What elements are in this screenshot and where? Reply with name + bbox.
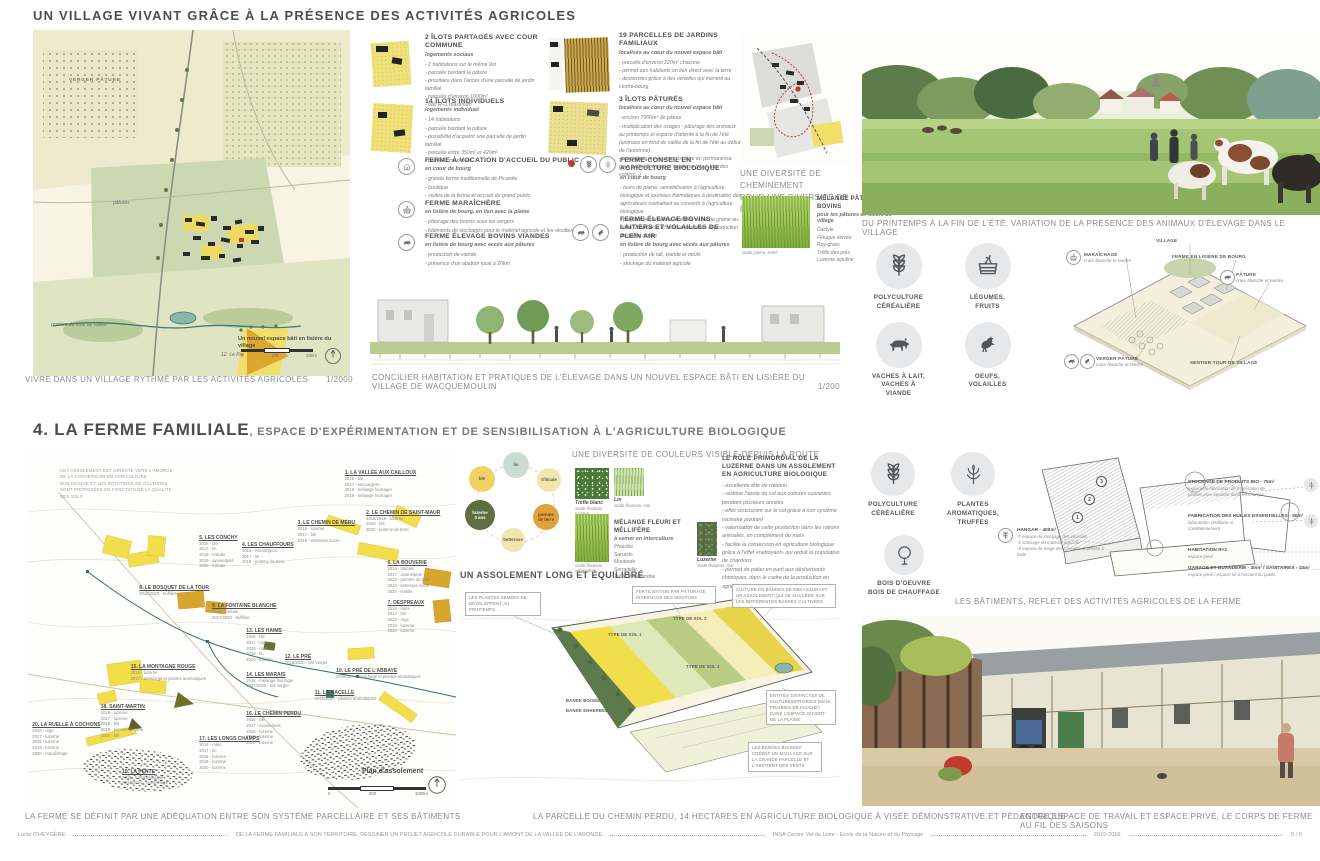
bullet: - prioritaire dans l'accès d'une parcell… bbox=[425, 77, 543, 93]
parcel-labels-layer: 1. LA VALLÉE AUX CAILLOUX 2016 - blé 201… bbox=[28, 452, 456, 812]
bullet: - parcelle entre 350m² et 420m² bbox=[425, 149, 543, 157]
section-caption-row: CONCILIER HABITATION ET PRATIQUES DE L'É… bbox=[372, 373, 840, 391]
annotation: TYPE DE SOL 2 bbox=[673, 616, 713, 622]
perspective-annotations: LES PLANTES SEMÉES SE DÉVELOPPENT AU PRI… bbox=[460, 580, 840, 805]
bullet: - 14 habitations bbox=[425, 116, 543, 124]
block-subheading: en cœur de bourg bbox=[425, 166, 580, 172]
annotation: TYPE DE SOL 1 bbox=[608, 632, 648, 638]
axo-label: VERGER PÂTURÉ craie blanche et tendre bbox=[1096, 356, 1166, 368]
village-meadow-illustration bbox=[862, 33, 1320, 215]
crate-icon bbox=[398, 201, 415, 218]
activity-icon-label: OEUFS, VOLAILLES bbox=[968, 373, 1006, 391]
plant-icon bbox=[1304, 478, 1318, 492]
parcel-rotation: 2016 - blé 2017 - orge 2018 - maïs 2019 … bbox=[246, 634, 332, 662]
annotation: BANDE ENHERBÉE bbox=[566, 708, 616, 714]
block-heading: 19 PARCELLES DE JARDINS FAMILIAUX bbox=[619, 32, 741, 49]
parcel-label: 13. LES HAIMS 2016 - blé 2017 - orge 201… bbox=[246, 628, 332, 662]
farm-icon-cell: BOIS D'OEUVRE BOIS DE CHAUFFAGE bbox=[864, 535, 944, 598]
section4-subtitle: , ESPACE D'EXPÉRIMENTATION ET DE SENSIBI… bbox=[249, 426, 786, 438]
parcel-label: 1. LA VALLÉE AUX CAILLOUX 2016 - blé 201… bbox=[345, 470, 431, 499]
rotation-diagram: lintriticalepomme de terrebetteraveluzer… bbox=[463, 452, 573, 564]
parcel-name: 2. LE CHEMIN DE SAINT-MAUR bbox=[366, 510, 452, 516]
block-subheading: logements sociaux bbox=[425, 52, 543, 58]
map-scalebar: 0100200m bbox=[241, 348, 313, 358]
activity-icon-cell: LÉGUMES, FRUITS bbox=[957, 243, 1018, 312]
rotation-nodes: lintriticalepomme de terrebetteraveluzer… bbox=[463, 452, 573, 564]
block-subheading: localisés au cœur du nouvel espace bâti bbox=[619, 50, 741, 56]
parcel-label: 17. LES LONGS CHAMPS 2016 - maïs 2017 - … bbox=[199, 736, 285, 770]
cow-icon bbox=[1064, 354, 1079, 369]
activity-icon-label: LÉGUMES, FRUITS bbox=[970, 294, 1005, 312]
fleuri-heading: MÉLANGE FLEURI ET MÉLLIFÈRE bbox=[614, 520, 696, 535]
rotation-node: blé bbox=[469, 466, 495, 492]
annotation: BANDE BOISÉE bbox=[566, 698, 610, 704]
rotation-node: lin bbox=[503, 452, 529, 478]
rotation-node: pomme de terre bbox=[533, 504, 559, 530]
activity-icon-label: POLYCULTURE CÉRÉALIÈRE bbox=[874, 294, 923, 312]
north-compass-icon bbox=[323, 346, 343, 366]
parcel-label: 19. LA PENTE 2016 - luzerne/dactyle 2017… bbox=[122, 769, 208, 786]
farm-buildings-axonometric: 123 HANGAR - 400m² ① espace de stockage … bbox=[990, 452, 1320, 597]
illustration-caption: DU PRINTEMPS À LA FIN DE L'ÉTÉ, VARIATIO… bbox=[862, 219, 1320, 237]
parcel-rotation: 2016 - triticale 2017/2020 - truffière bbox=[212, 609, 298, 620]
parcel-rotation: 2016 - orge 2017 - luzerne 2018 - luzern… bbox=[32, 728, 118, 756]
footer-divider bbox=[610, 834, 765, 836]
activity-icon-cell: OEUFS, VOLAILLES bbox=[957, 322, 1018, 399]
hen-icon bbox=[965, 322, 1011, 368]
axo-label: FERME EN LISIÈRE DE BOURG bbox=[1172, 254, 1262, 260]
building-label: GARAGE ET BUANDERIE - 30m² / SANITAIRES … bbox=[1188, 566, 1318, 578]
bullet: - restitue l'azote du sol aux cultures s… bbox=[722, 490, 840, 507]
crate-icon bbox=[1066, 250, 1081, 265]
grass-photo-caption: stade prairie, semé bbox=[742, 250, 778, 255]
bullet: - facilite la conversion en agriculture … bbox=[722, 541, 840, 566]
map-poi-dot bbox=[795, 86, 800, 91]
block-subheading: en lisière de bourg avec accès aux pâtur… bbox=[620, 242, 742, 248]
tree-icon bbox=[884, 535, 924, 575]
block-ferme-accueil: FERME À VOCATION D'ACCUEIL DU PUBLIC en … bbox=[425, 157, 580, 200]
presentation-board: UN VILLAGE VIVANT GRÂCE À LA PRÉSENCE DE… bbox=[0, 0, 1320, 861]
courtyard-caption: ENTRE ESPACE DE TRAVAIL ET ESPACE PRIVÉ,… bbox=[1020, 812, 1320, 830]
parcel-rotation: 2016 - blé 2017 - lin 2018 - triticale 2… bbox=[199, 541, 285, 569]
luzerne-bullets: - excellente tête de rotation- restitue … bbox=[722, 482, 840, 591]
section4-title-row: 4. LA FERME FAMILIALE, ESPACE D'EXPÉRIME… bbox=[33, 420, 787, 440]
bullet: - permet aux habitants un lien direct av… bbox=[619, 67, 741, 75]
activity-icon-label: VACHES À LAIT, VACHES À VIANDE bbox=[868, 373, 929, 399]
house-icon bbox=[398, 158, 415, 175]
bullet: - excellente tête de rotation bbox=[722, 482, 840, 490]
plan-thumbnail-ilots-individuels bbox=[368, 100, 416, 156]
assolement-map: CET ASSOLEMENT EST ORIENTÉ VERS L'AMORCE… bbox=[28, 452, 456, 812]
crate-icon bbox=[965, 243, 1011, 289]
cheminement-map bbox=[742, 33, 857, 165]
plant-icon bbox=[951, 452, 995, 496]
footer-author: Lucie D'HEYGÈRE bbox=[18, 832, 65, 838]
cow-icon bbox=[1220, 270, 1235, 285]
bullet: - effet structurant sur le sol grâce à s… bbox=[722, 507, 840, 524]
luzerne-heading: LE RÔLE PRIMORDIAL DE LA LUZERNE DANS UN… bbox=[722, 455, 840, 479]
village-map-caption: VIVRE DANS UN VILLAGE RYTHMÉ PAR LES ACT… bbox=[25, 375, 308, 384]
block-jardins-familiaux: 19 PARCELLES DE JARDINS FAMILIAUX locali… bbox=[619, 32, 741, 91]
species-item: Sarrasin bbox=[614, 552, 696, 560]
cow-icon bbox=[398, 234, 415, 251]
plan-scalebar: 05001000m bbox=[328, 786, 428, 796]
village-map-scale: 1/2000 bbox=[326, 375, 353, 384]
bullet: - tours de plaine, sensibilisation à l'a… bbox=[620, 184, 742, 216]
block-bullets: - parcelle d'environ 220m² chacune- perm… bbox=[619, 59, 741, 91]
bullet: - parcelle d'environ 220m² chacune bbox=[619, 59, 741, 67]
block-heading: FERME-CONSEIL EN AGRICULTURE BIOLOGIQUE bbox=[620, 157, 742, 174]
north-compass-icon bbox=[426, 774, 448, 796]
footer-divider bbox=[73, 834, 228, 836]
footer-page: 5 / 5 bbox=[1291, 832, 1302, 838]
parcel-rotation: 2016 - luzerne 2017 - maïs/orge et plant… bbox=[131, 670, 217, 681]
block-bullets: - grande ferme traditionnelle de Picardi… bbox=[425, 175, 580, 199]
building-label: FABRICATION DES HUILES ESSENTIELLES - 50… bbox=[1188, 514, 1306, 532]
hen-icon bbox=[1080, 354, 1095, 369]
activity-icon-cell: POLYCULTURE CÉRÉALIÈRE bbox=[868, 243, 929, 312]
building-label: HABITATION R+1 espace privé bbox=[1188, 548, 1306, 560]
footer: Lucie D'HEYGÈRE DE LA FERME FAMILIALE À … bbox=[18, 832, 1302, 838]
buildings-caption: LES BÂTIMENTS, REFLET DES ACTIVITÉS AGRI… bbox=[955, 597, 1241, 606]
block-ferme-bovins-laitiers: FERME ÉLEVAGE BOVINS LAITIERS ET VOLAILL… bbox=[620, 216, 742, 268]
courtyard-illustration bbox=[862, 616, 1320, 806]
block-subheading: en lisière de bourg avec accès aux pâtur… bbox=[425, 242, 580, 248]
block-heading: FERME ÉLEVAGE BOVINS VIANDES bbox=[425, 233, 580, 241]
wheat-icon bbox=[871, 452, 915, 496]
annotation: ENTITÉS DISTINCTES DE CULTURES/PRAIRIES … bbox=[766, 690, 836, 725]
axo-label: MARAÎCHAGE craie blanche et tendre bbox=[1084, 252, 1154, 264]
parcel-rotation: 2016 - luzerne 2017 - blé 2018 - bettera… bbox=[298, 526, 384, 543]
rotation-node: luzerne 3 ans bbox=[465, 500, 495, 530]
wheat-icon bbox=[580, 156, 597, 173]
bullet: - parcelle bordant la pâture bbox=[425, 125, 543, 133]
block-heading: FERME MARAÎCHÈRE bbox=[425, 200, 580, 208]
activity-icons-grid: POLYCULTURE CÉRÉALIÈRE LÉGUMES, FRUITS V… bbox=[868, 243, 1018, 399]
bullet: - visites de la ferme et accueil du gran… bbox=[425, 192, 580, 200]
parcel-rotation: 2016 - mélange fourrager 2017/2020 - pré… bbox=[246, 678, 332, 689]
axo-label: VILLAGE bbox=[1156, 238, 1216, 244]
bullet: - pâturage des bovins sous les vergers bbox=[425, 218, 580, 226]
hen-icon bbox=[592, 224, 609, 241]
parcel-label: 9. LA FONTAINE BLANCHE 2016 - triticale … bbox=[212, 603, 298, 620]
footer-project: DE LA FERME FAMILIALE À SON TERRITOIRE, … bbox=[236, 832, 602, 838]
bullet: - environ 7000m² de pâture bbox=[619, 114, 741, 122]
cow-icon bbox=[572, 224, 589, 241]
parcel-label: 3. LE CHEMIN DE MÉRU 2016 - luzerne 2017… bbox=[298, 520, 384, 543]
bullet: - production de viande bbox=[425, 251, 580, 259]
footer-year: 2015-2016 bbox=[1094, 832, 1121, 838]
bullet: - valorisation de cette production dans … bbox=[722, 524, 840, 541]
block-heading: 3 ÎLOTS PÂTURÉS bbox=[619, 96, 741, 104]
plan-thumbnail-jardins-familiaux bbox=[547, 36, 611, 94]
block-subheading: en lisière de bourg, en lien avec la pla… bbox=[425, 209, 580, 215]
parcel-perspective: LES PLANTES SEMÉES SE DÉVELOPPENT AU PRI… bbox=[460, 580, 840, 805]
section4-title: 4. LA FERME FAMILIALE bbox=[33, 420, 249, 439]
axo-label: SENTIER TOUR DE VILLAGE bbox=[1190, 360, 1280, 366]
photo-lin: Lin stade floraison, mai bbox=[614, 468, 650, 508]
footer-school: INSA Centre Val de Loire - École de la N… bbox=[773, 832, 923, 838]
plant-icon bbox=[1304, 514, 1318, 528]
axo-label: PÂTURE craie blanche et tendre bbox=[1236, 272, 1306, 284]
village-map-labels: VERGER PÂTUREpâturesprairies de fond de … bbox=[33, 30, 350, 376]
cow-icon bbox=[876, 322, 922, 368]
red-dot-icon bbox=[568, 160, 575, 167]
melange-fleuri-block: MÉLANGE FLEURI ET MÉLLIFÈRE à semer en i… bbox=[614, 520, 696, 582]
farm-icon-cell: POLYCULTURE CÉRÉALIÈRE bbox=[864, 452, 922, 527]
fleuri-species-list: PhacélieSarrasinMoutardeSerradelleTrèfle… bbox=[614, 544, 696, 582]
section-scale: 1/200 bbox=[818, 382, 840, 391]
parcel-rotation: 2016/20 - maraîchage et plantes aromatiq… bbox=[336, 674, 422, 680]
rotation-node: triticale bbox=[537, 468, 561, 492]
annotation: CULTURE EN BANDES DE 50M ASSURANT UN ASS… bbox=[732, 584, 836, 608]
parcel-label: 11. LA NACELLE 2016/2020 - plantes aroma… bbox=[315, 690, 401, 702]
block-heading: 2 ÎLOTS PARTAGÉS AVEC COUR COMMUNE bbox=[425, 34, 543, 51]
plant-icon bbox=[599, 156, 616, 173]
parcel-rotation: 2016 - maïs 2017 - lin 2018 - luzerne 20… bbox=[199, 742, 285, 770]
footer-divider bbox=[1129, 834, 1284, 836]
photo-melange-fleuri: stade floraison, septembre bbox=[575, 514, 609, 574]
map-label: prairies de fond de vallée bbox=[51, 322, 107, 329]
rotation-node: betterave bbox=[501, 528, 525, 552]
building-label: STOCKAGE DE PRODUITS BIO - 75m² espace d… bbox=[1188, 480, 1306, 498]
assolement-map-caption: LA FERME SE DÉFINIT PAR UNE ADÉQUATION E… bbox=[25, 812, 461, 821]
parcel-label: 15. LA MONTAGNE ROUGE 2016 - luzerne 201… bbox=[131, 664, 217, 681]
parcel-label: 8. LE BOSQUET DE LA TOUR 2016/2020 - tru… bbox=[139, 585, 225, 597]
bullet: - grande ferme traditionnelle de Picardi… bbox=[425, 175, 580, 183]
annotation: FERTILISATION PAR PÂTURAGE HIVERNAGE DES… bbox=[632, 586, 716, 604]
parcel-label: 20. LA RUELLE À COCHONS 2016 - orge 2017… bbox=[32, 722, 118, 756]
block-heading: 14 ÎLOTS INDIVIDUELS bbox=[425, 98, 543, 106]
village-axonometric: MARAÎCHAGE craie blanche et tendre VILLA… bbox=[1040, 238, 1320, 390]
village-section-drawing bbox=[370, 262, 840, 370]
village-map: VERGER PÂTUREpâturesprairies de fond de … bbox=[33, 30, 350, 376]
map-label: pâtures bbox=[113, 200, 130, 207]
annotation: LES PLANTES SEMÉES SE DÉVELOPPENT AU PRI… bbox=[465, 592, 541, 616]
block-subheading: logements individuel bbox=[425, 107, 543, 113]
bullet: - production de lait, viande et oeufs bbox=[620, 251, 742, 259]
block-heading: FERME À VOCATION D'ACCUEIL DU PUBLIC bbox=[425, 157, 580, 165]
parcel-label: 10. LE PRÉ DE L'ABBAYE 2016/20 - maraîch… bbox=[336, 668, 422, 680]
parcel-rotation: 2016/2020 - truffière bbox=[139, 591, 225, 597]
block-ilots-individuels: 14 ÎLOTS INDIVIDUELS logements individue… bbox=[425, 98, 543, 165]
footer-divider bbox=[931, 834, 1086, 836]
block-heading: FERME ÉLEVAGE BOVINS LAITIERS ET VOLAILL… bbox=[620, 216, 742, 241]
village-map-caption-row: VIVRE DANS UN VILLAGE RYTHMÉ PAR LES ACT… bbox=[25, 375, 353, 384]
parcel-label: 5. LES CONCHY 2016 - blé 2017 - lin 2018… bbox=[199, 535, 285, 569]
map-label: VERGER PÂTURE bbox=[69, 78, 121, 84]
bullet: - possibilité d'acquérir une parcelle de… bbox=[425, 133, 543, 149]
annotation: TYPE DE SOL 3 bbox=[686, 664, 726, 670]
block-subheading: en cœur de bourg bbox=[620, 175, 742, 181]
paturage-grass-photo bbox=[742, 196, 810, 248]
section1-title: UN VILLAGE VIVANT GRÂCE À LA PRÉSENCE DE… bbox=[33, 8, 576, 23]
bullet: - 2 habitations sur le même îlot bbox=[425, 61, 543, 69]
bullet: - desservies grâce à des venelles qui mè… bbox=[619, 75, 741, 91]
building-labels: STOCKAGE DE PRODUITS BIO - 75m² espace d… bbox=[990, 452, 1320, 597]
parcel-label: 14. LES MARAIS 2016 - mélange fourrager … bbox=[246, 672, 332, 689]
block-ferme-maraichere: FERME MARAÎCHÈRE en lisière de bourg, en… bbox=[425, 200, 580, 235]
parcel-rotation: 2016 - blé 2017 - escourgeon 2018 - méla… bbox=[345, 476, 431, 499]
wheat-icon bbox=[876, 243, 922, 289]
plan-thumbnail-ilots-partages bbox=[368, 36, 416, 92]
parcel-rotation: 2016/2020 - plantes aromatiques bbox=[315, 696, 401, 702]
plan-label: Plan d'assolement bbox=[362, 768, 423, 775]
species-item: Moutarde bbox=[614, 559, 696, 567]
luzerne-block: LE RÔLE PRIMORDIAL DE LA LUZERNE DANS UN… bbox=[722, 455, 840, 591]
species-item: Phacélie bbox=[614, 544, 696, 552]
photo-trefle: Trèfle blanc stade floraison, octobre bbox=[575, 468, 609, 517]
bullet: - parcelle bordant la pâture bbox=[425, 69, 543, 77]
annotation: LES BANDES BOISÉES CRÉENT UN MAILLAGE SU… bbox=[748, 742, 822, 772]
plan-thumbnail-ilots-patures bbox=[547, 100, 611, 158]
section-caption: CONCILIER HABITATION ET PRATIQUES DE L'É… bbox=[372, 373, 818, 391]
perspective-caption: LA PARCELLE DU CHEMIN PERDU, 14 HECTARES… bbox=[533, 812, 1066, 821]
bullet: - boutique bbox=[425, 184, 580, 192]
species-item: Serradelle bbox=[614, 567, 696, 575]
farm-icons-grid: POLYCULTURE CÉRÉALIÈRE PLANTES AROMATIQU… bbox=[864, 452, 1004, 598]
fleuri-subheading: à semer en interculture bbox=[614, 536, 696, 542]
activity-icon-cell: VACHES À LAIT, VACHES À VIANDE bbox=[868, 322, 929, 399]
parcel-rotation: 2016 - luzerne/dactyle 2017/2020 - maraî… bbox=[122, 775, 208, 786]
block-subheading: localisés au cœur du nouvel espace bâti bbox=[619, 105, 741, 111]
bullet: - multiplication des usages : pâturage d… bbox=[619, 123, 741, 155]
